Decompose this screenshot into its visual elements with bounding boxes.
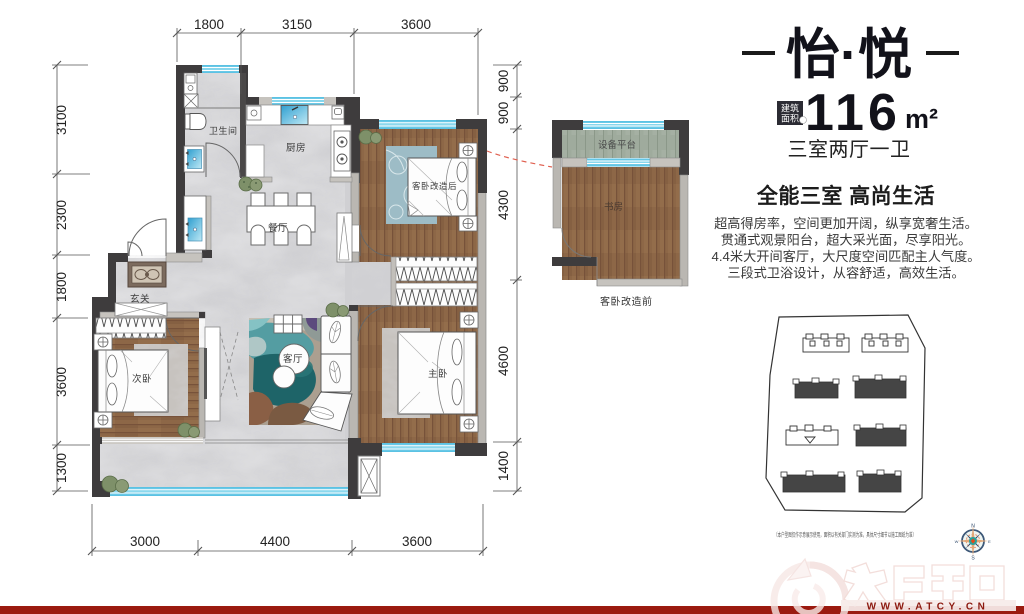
- svg-text:建筑: 建筑: [781, 103, 799, 114]
- svg-text:三段式卫浴设计，从容舒适，高效生活。: 三段式卫浴设计，从容舒适，高效生活。: [727, 265, 964, 281]
- svg-text:客厅: 客厅: [283, 353, 303, 365]
- svg-text:4600: 4600: [496, 346, 511, 376]
- svg-text:客卧改造前: 客卧改造前: [600, 295, 653, 308]
- svg-text:贯通式观景阳台，超大采光面，尽享阳光。: 贯通式观景阳台，超大采光面，尽享阳光。: [721, 232, 972, 248]
- svg-text:WWW.ATCY.CN: WWW.ATCY.CN: [867, 602, 990, 613]
- svg-text:1800: 1800: [194, 17, 224, 32]
- svg-text:3600: 3600: [401, 17, 431, 32]
- svg-text:3000: 3000: [130, 534, 160, 549]
- svg-text:4300: 4300: [496, 190, 511, 220]
- svg-text:116: 116: [805, 84, 901, 142]
- svg-text:（本户型图仅作示意展示使用，面积以有关部门实测为准，具体尺寸: （本户型图仅作示意展示使用，面积以有关部门实测为准，具体尺寸细节以施工图纸为准）: [774, 531, 916, 539]
- svg-text:怡·悦: 怡·悦: [786, 25, 912, 85]
- svg-text:3150: 3150: [282, 17, 312, 32]
- svg-text:3100: 3100: [54, 105, 69, 135]
- svg-text:卫生间: 卫生间: [209, 125, 238, 136]
- svg-text:次卧: 次卧: [132, 373, 152, 385]
- svg-text:1800: 1800: [54, 272, 69, 302]
- svg-text:面积: 面积: [781, 113, 799, 124]
- svg-text:900: 900: [496, 102, 511, 125]
- svg-text:2300: 2300: [54, 200, 69, 230]
- svg-text:4400: 4400: [260, 534, 290, 549]
- svg-text:厨房: 厨房: [286, 142, 306, 154]
- svg-text:W: W: [955, 539, 959, 544]
- svg-text:3600: 3600: [402, 534, 432, 549]
- svg-text:E: E: [988, 539, 991, 544]
- svg-text:全能三室 高尚生活: 全能三室 高尚生活: [756, 184, 935, 208]
- svg-text:主卧: 主卧: [428, 368, 448, 380]
- svg-text:1300: 1300: [54, 453, 69, 483]
- svg-text:设备平台: 设备平台: [598, 139, 636, 151]
- svg-text:3600: 3600: [54, 367, 69, 397]
- svg-text:三室两厅一卫: 三室两厅一卫: [788, 138, 911, 161]
- svg-text:超高得房率，空间更加开阔，纵享宽奢生活。: 超高得房率，空间更加开阔，纵享宽奢生活。: [714, 215, 978, 231]
- svg-text:N: N: [971, 524, 975, 530]
- svg-text:m²: m²: [905, 104, 938, 134]
- svg-text:客卧改造后: 客卧改造后: [412, 181, 457, 191]
- svg-text:1400: 1400: [496, 451, 511, 481]
- svg-text:书房: 书房: [604, 201, 623, 213]
- svg-text:900: 900: [496, 70, 511, 93]
- svg-text:玄关: 玄关: [130, 293, 150, 305]
- svg-text:4.4米大开间客厅，大尺度空间匹配主人气度。: 4.4米大开间客厅，大尺度空间匹配主人气度。: [712, 248, 981, 264]
- svg-text:餐厅: 餐厅: [268, 222, 288, 234]
